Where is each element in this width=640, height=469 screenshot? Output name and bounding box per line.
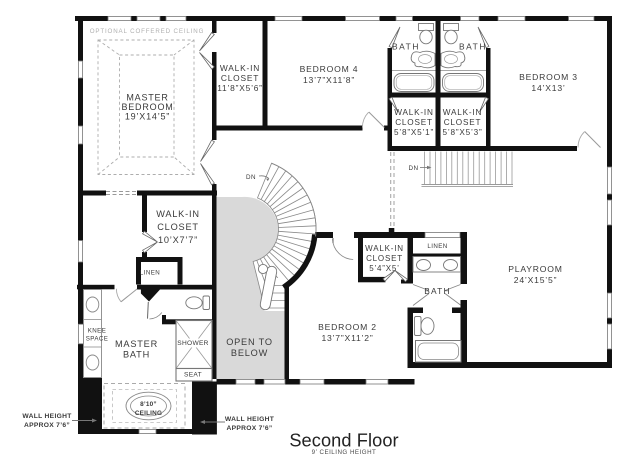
svg-text:BEDROOM 3: BEDROOM 3 (519, 72, 578, 82)
svg-text:SPACE: SPACE (86, 336, 109, 343)
svg-text:BATH: BATH (392, 42, 420, 52)
svg-text:24’X15’5”: 24’X15’5” (514, 275, 558, 285)
svg-text:5’4”X5’: 5’4”X5’ (369, 264, 400, 273)
svg-text:CLOSET: CLOSET (157, 222, 199, 232)
svg-text:5’8”X5’1”: 5’8”X5’1” (394, 128, 434, 137)
svg-text:CLOSET: CLOSET (444, 118, 482, 127)
svg-text:BATH: BATH (424, 286, 451, 296)
svg-text:LINEN: LINEN (427, 243, 447, 250)
svg-text:APPROX 7’6”: APPROX 7’6” (226, 425, 272, 432)
svg-text:19’X14’5”: 19’X14’5” (125, 112, 170, 122)
svg-text:CLOSET: CLOSET (366, 254, 403, 263)
svg-text:CLOSET: CLOSET (221, 73, 259, 83)
svg-text:WALK-IN: WALK-IN (365, 244, 404, 253)
svg-text:8’10”: 8’10” (140, 401, 157, 408)
svg-text:SEAT: SEAT (184, 372, 202, 379)
svg-text:BATH: BATH (123, 350, 150, 360)
svg-text:9’ CEILING HEIGHT: 9’ CEILING HEIGHT (312, 449, 377, 456)
svg-text:WALK-IN: WALK-IN (394, 108, 433, 117)
svg-text:14’X13’: 14’X13’ (531, 83, 565, 93)
svg-text:Second Floor: Second Floor (289, 431, 398, 451)
svg-text:DN: DN (408, 165, 418, 172)
svg-text:BATH: BATH (459, 42, 487, 52)
svg-text:MASTER: MASTER (115, 339, 158, 349)
svg-text:CLOSET: CLOSET (395, 118, 433, 127)
svg-text:SHOWER: SHOWER (177, 340, 208, 347)
svg-text:WALK-IN: WALK-IN (220, 63, 260, 73)
svg-text:BEDROOM 4: BEDROOM 4 (300, 64, 359, 74)
svg-text:5’8”X5’3”: 5’8”X5’3” (443, 128, 483, 137)
svg-text:OPEN TO: OPEN TO (226, 337, 273, 347)
svg-text:BELOW: BELOW (231, 348, 268, 358)
svg-text:WALL HEIGHT: WALL HEIGHT (22, 413, 72, 420)
svg-text:OPTIONAL COFFERED CEILING: OPTIONAL COFFERED CEILING (90, 28, 205, 35)
svg-text:WALK-IN: WALK-IN (443, 108, 482, 117)
svg-text:13’7”X11’2”: 13’7”X11’2” (321, 333, 373, 343)
svg-text:MASTER: MASTER (126, 93, 168, 103)
svg-text:CEILING: CEILING (135, 410, 162, 417)
svg-text:BEDROOM: BEDROOM (121, 102, 173, 112)
svg-text:APPROX 7’6”: APPROX 7’6” (24, 422, 70, 429)
svg-text:13’7”X11’8”: 13’7”X11’8” (303, 75, 355, 85)
svg-text:10’X7’7”: 10’X7’7” (158, 235, 198, 245)
svg-text:11’8”X5’6”: 11’8”X5’6” (217, 83, 263, 93)
svg-text:KNEE: KNEE (88, 328, 106, 335)
svg-text:LINEN: LINEN (140, 270, 160, 277)
svg-text:BEDROOM 2: BEDROOM 2 (318, 322, 377, 332)
svg-text:WALL HEIGHT: WALL HEIGHT (225, 416, 275, 423)
svg-text:PLAYROOM: PLAYROOM (508, 264, 562, 274)
svg-text:DN: DN (246, 174, 256, 181)
svg-text:WALK-IN: WALK-IN (156, 209, 200, 219)
